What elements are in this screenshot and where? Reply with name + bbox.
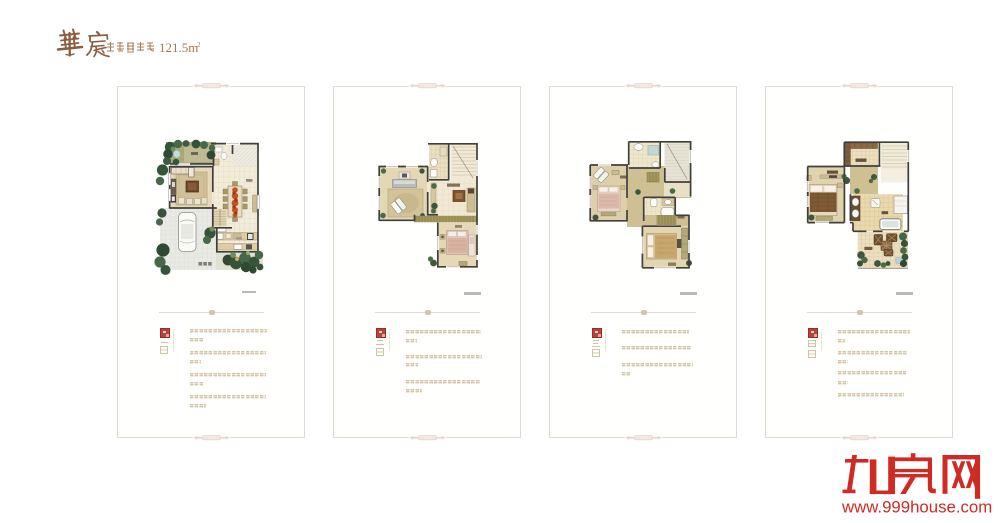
svg-text:www.999house.com: www.999house.com bbox=[841, 498, 992, 517]
